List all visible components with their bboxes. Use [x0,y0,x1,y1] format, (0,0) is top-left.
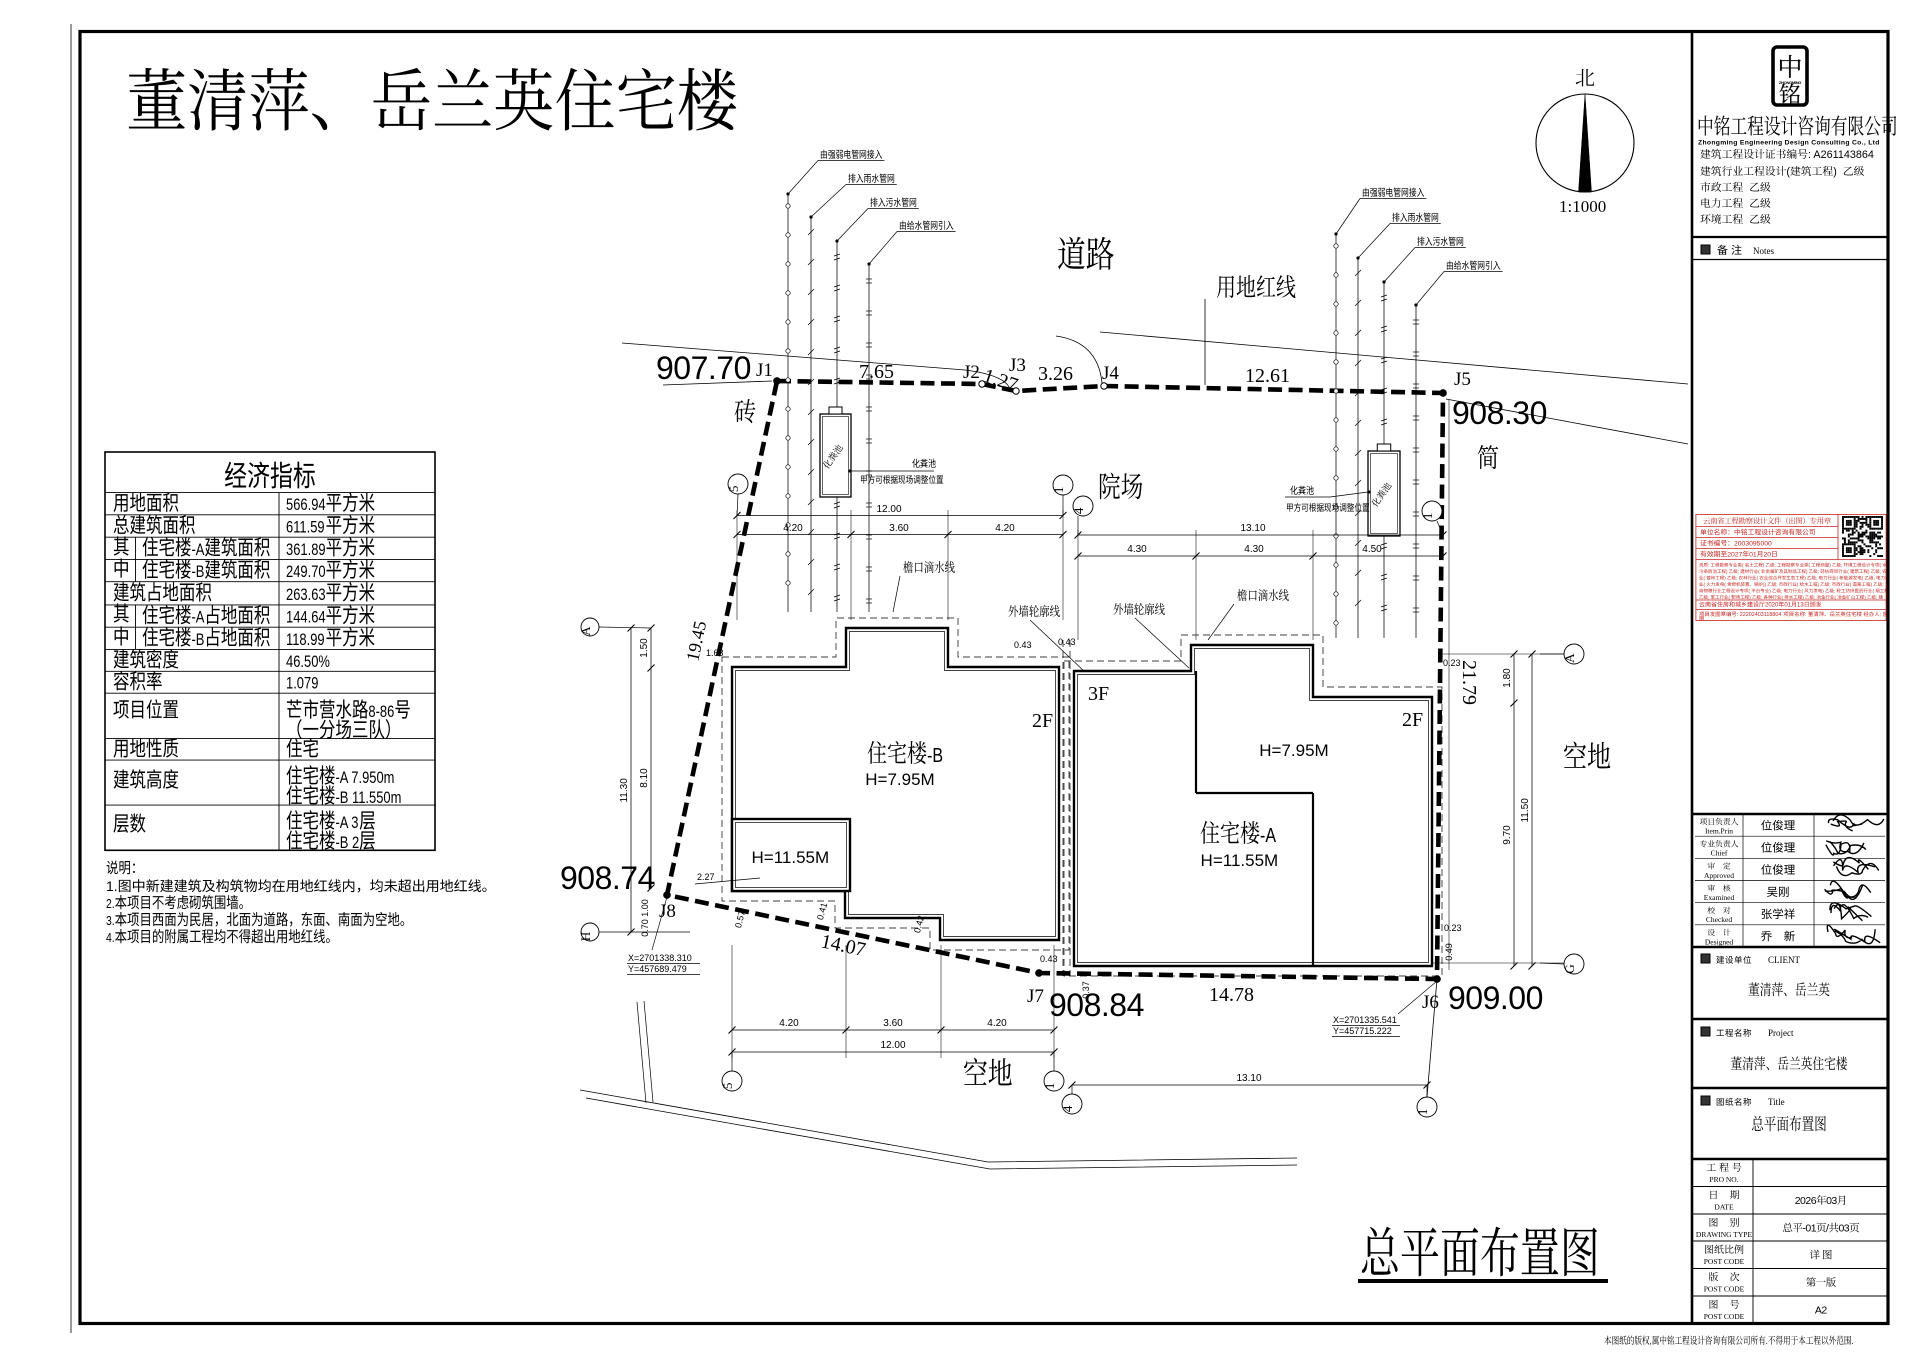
svg-text:DRAWING TYPE: DRAWING TYPE [1696,1230,1753,1239]
svg-text:12.00: 12.00 [876,504,901,515]
svg-text:3.: 3. [106,914,115,928]
svg-text:1:1000: 1:1000 [1559,197,1606,216]
svg-text:-01: -01 [1802,1223,1816,1235]
svg-text:Examined: Examined [1704,893,1735,902]
svg-text:4.20: 4.20 [779,1018,799,1029]
svg-text:DATE: DATE [1714,1203,1734,1212]
svg-text:;: ; [1880,569,1881,574]
svg-text:1.: 1. [106,878,118,894]
svg-text:0.49: 0.49 [1444,943,1454,961]
svg-text:20: 20 [1763,552,1771,559]
svg-text:2003095000: 2003095000 [1734,541,1772,548]
svg-text:4: 4 [1071,507,1086,514]
svg-text:13.10: 13.10 [1236,1073,1261,1084]
svg-text:0.23: 0.23 [1443,658,1461,668]
svg-text:0.43: 0.43 [1040,954,1058,964]
svg-text:H=11.55M: H=11.55M [1201,851,1279,870]
svg-text:12.00: 12.00 [880,1040,905,1051]
svg-text:909.00: 909.00 [1448,980,1543,1016]
svg-text:H=7.95M: H=7.95M [1259,741,1328,760]
svg-text:): ) [1833,166,1837,178]
svg-text:Project: Project [1768,1028,1794,1038]
svg-text:H: H [578,932,593,941]
svg-text:13.10: 13.10 [1240,523,1265,534]
svg-text:5: 5 [726,486,741,493]
svg-text:-A: -A [1260,824,1277,846]
svg-text:8-86: 8-86 [368,704,394,722]
svg-text:-A: -A [191,541,204,559]
svg-text:908.84: 908.84 [1049,987,1144,1023]
svg-text:,: , [1650,1335,1652,1346]
svg-text:0.43: 0.43 [1014,640,1032,650]
svg-text:-B: -B [191,631,204,649]
svg-text:;: ; [1829,582,1830,587]
svg-text:4.20: 4.20 [995,523,1015,534]
svg-text:12.61: 12.61 [1245,365,1290,387]
svg-text:-B: -B [191,564,204,582]
svg-text:A: A [578,626,593,636]
svg-text:9.70: 9.70 [1502,825,1513,845]
svg-text:Item.Prin: Item.Prin [1705,827,1733,836]
svg-text:;: ; [1738,569,1739,574]
svg-text:144.64: 144.64 [286,609,326,627]
svg-text:Y=457715.222: Y=457715.222 [1333,1026,1392,1036]
svg-text:2.: 2. [106,897,115,911]
svg-text:CLIENT: CLIENT [1768,955,1800,965]
svg-text:POST CODE: POST CODE [1704,1312,1745,1321]
svg-text:;: ; [1775,563,1776,568]
svg-text:1: 1 [1051,487,1066,494]
svg-text:POST CODE: POST CODE [1704,1257,1745,1266]
svg-text:1.63: 1.63 [706,648,724,658]
svg-text:118.99: 118.99 [286,631,325,649]
svg-text:Designed: Designed [1705,937,1734,946]
svg-text:2027: 2027 [1727,552,1742,559]
svg-text:1.00: 1.00 [640,899,650,917]
svg-text:3.26: 3.26 [1038,363,1073,385]
svg-text:11.50: 11.50 [1520,798,1531,823]
svg-text:-A 3: -A 3 [335,815,358,833]
svg-text:1.80: 1.80 [1502,668,1513,688]
svg-text:3F: 3F [1088,683,1109,705]
svg-text:249.70: 249.70 [286,564,326,582]
svg-text:0.37: 0.37 [1081,981,1091,999]
svg-text::: : [1880,612,1882,618]
svg-text:;: ; [1818,569,1819,574]
svg-text:: 22202403118804: : 22202403118804 [1737,612,1782,618]
svg-text:4.20: 4.20 [987,1018,1007,1029]
svg-text:;: ; [1781,588,1782,593]
svg-text:J2: J2 [963,362,980,383]
svg-text:4.: 4. [106,931,115,945]
svg-text:2F: 2F [1032,710,1053,732]
svg-text:1: 1 [1042,1083,1057,1090]
svg-text:-B 11.550m: -B 11.550m [335,790,401,808]
svg-text:4.20: 4.20 [783,523,803,534]
svg-text:Approved: Approved [1704,871,1734,880]
svg-text:-B: -B [927,744,943,766]
svg-text:11.30: 11.30 [619,778,630,803]
svg-text:G: G [1562,964,1577,973]
svg-text:4.50: 4.50 [1362,544,1382,555]
svg-text:X=2701338.310: X=2701338.310 [628,953,692,963]
svg-text:0.70: 0.70 [640,919,650,937]
svg-text:;: ; [1776,582,1777,587]
svg-text:J7: J7 [1027,986,1044,1007]
svg-text:2.27: 2.27 [697,872,715,882]
svg-text:4.30: 4.30 [1244,544,1264,555]
svg-text:Title: Title [1768,1097,1785,1107]
svg-text:2020: 2020 [1765,603,1779,609]
svg-text:-B 2: -B 2 [335,835,359,853]
svg-text:.: . [1851,1335,1853,1346]
svg-text:J1: J1 [756,360,773,381]
svg-text:Y=457689.479: Y=457689.479 [628,964,687,974]
svg-text:01: 01 [1784,603,1791,609]
svg-text:13: 13 [1797,603,1804,609]
svg-text:3.60: 3.60 [883,1018,903,1029]
svg-text:;: ; [1841,563,1842,568]
svg-text::: : [1805,612,1807,618]
svg-text:H=7.95M: H=7.95M [865,770,934,789]
svg-text:H=11.55M: H=11.55M [752,848,830,867]
svg-text:263.63: 263.63 [286,586,326,604]
svg-text:0.43: 0.43 [1058,637,1076,647]
svg-text:907.70: 907.70 [656,350,751,386]
svg-text:A2: A2 [1815,1305,1828,1317]
svg-text:;: ; [1873,575,1874,580]
svg-text::: : [1708,563,1709,568]
svg-text:Zhongming Engineering Design C: Zhongming Engineering Design Consulting … [1698,140,1880,147]
svg-text:X=2701335.541: X=2701335.541 [1333,1015,1397,1025]
svg-text:;: ; [1882,582,1883,587]
svg-text:Checked: Checked [1706,915,1732,924]
svg-text:(: ( [1786,166,1790,178]
svg-text:ZHONGMING: ZHONGMING [1779,80,1801,85]
svg-text:03: 03 [1826,1195,1837,1207]
svg-text:7.65: 7.65 [859,361,894,383]
svg-text:1.079: 1.079 [286,675,318,693]
svg-text:01: 01 [1749,552,1757,559]
svg-text:;: ; [1834,588,1835,593]
svg-text:;: ; [1816,575,1817,580]
svg-text:J8: J8 [659,901,676,922]
svg-text:.: . [1766,1335,1768,1346]
svg-text:2F: 2F [1402,709,1423,731]
svg-text:5: 5 [720,1083,735,1090]
svg-text:8.10: 8.10 [639,768,650,788]
svg-text:: A261143864: : A261143864 [1808,149,1874,161]
svg-text:;: ; [1761,595,1762,600]
svg-text:)): )) [1763,582,1766,587]
svg-text:3.60: 3.60 [889,523,909,534]
svg-text:;: ; [1708,595,1709,600]
svg-text:Notes: Notes [1753,246,1774,256]
svg-text:J5: J5 [1454,369,1471,390]
svg-text:J4: J4 [1102,363,1119,384]
svg-text:POST CODE: POST CODE [1704,1285,1745,1294]
svg-text:908.30: 908.30 [1452,395,1547,431]
svg-text:03: 03 [1838,1223,1849,1235]
svg-text:566.94: 566.94 [286,497,326,515]
svg-text:611.59: 611.59 [286,519,325,537]
svg-text:PRO NO.: PRO NO. [1709,1175,1738,1184]
svg-text:0.23: 0.23 [1444,923,1462,933]
svg-text:2026: 2026 [1795,1195,1817,1207]
svg-text:-A: -A [191,609,204,627]
svg-text:Chief: Chief [1711,849,1728,858]
svg-text:-A 7.950m: -A 7.950m [335,770,394,788]
svg-text:46.50%: 46.50% [286,654,330,672]
svg-text:J6: J6 [1422,992,1439,1013]
svg-text:1: 1 [1420,513,1435,520]
svg-text:21.79: 21.79 [1458,660,1480,705]
svg-text:4: 4 [1060,1105,1075,1112]
svg-text:;: ; [1814,595,1815,600]
svg-text:361.89: 361.89 [286,541,326,559]
svg-text:4.30: 4.30 [1127,544,1147,555]
svg-text:A: A [1562,653,1577,663]
svg-text:908.74: 908.74 [560,860,655,896]
svg-text:;: ; [1736,575,1737,580]
svg-text:14.78: 14.78 [1209,984,1254,1006]
svg-text:1.50: 1.50 [639,638,650,658]
svg-text:;: ; [1876,595,1877,600]
svg-text:1: 1 [1415,1109,1430,1116]
